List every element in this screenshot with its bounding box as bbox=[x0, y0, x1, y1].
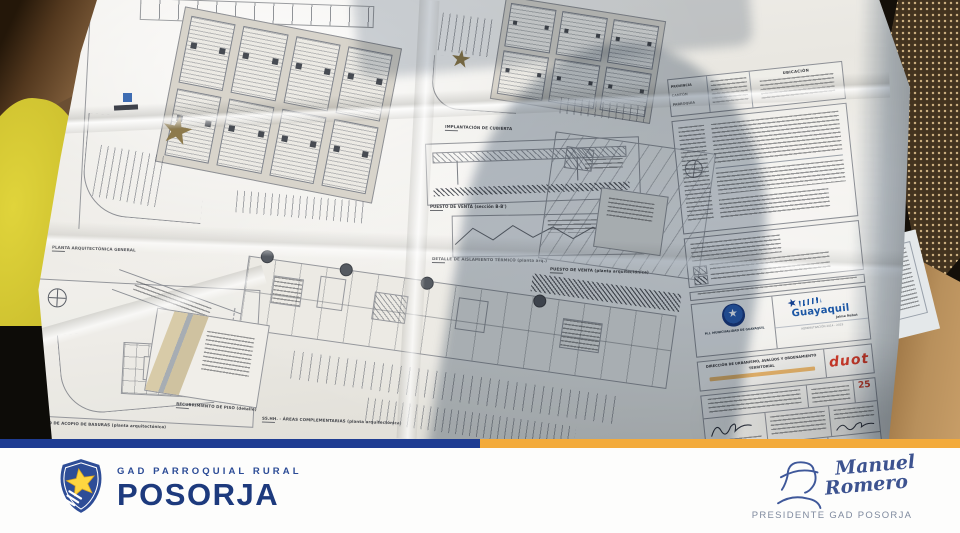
caption-planta-general: PLANTA ARQUITECTÓNICA GENERAL bbox=[52, 245, 136, 255]
roof-block bbox=[607, 19, 659, 70]
photo-of-blueprint: PLANTA ARQUITECTÓNICA GENERAL IMPLANTACI… bbox=[0, 0, 960, 439]
entry-label-bar bbox=[114, 104, 138, 110]
divider-blue-segment bbox=[0, 439, 480, 448]
president-signature: Manuel Romero bbox=[822, 449, 936, 504]
gold-star-icon bbox=[448, 47, 473, 74]
handicap-marker bbox=[123, 93, 132, 102]
caption-detalle-aislamiento: DETALLE DE AISLAMIENTO TÉRMICO (planta a… bbox=[432, 256, 547, 265]
stall-block bbox=[231, 26, 288, 101]
divider-bar bbox=[0, 439, 960, 448]
duot-logo: duot bbox=[824, 344, 873, 377]
stall-block bbox=[335, 46, 392, 121]
caption-implantacion-cubierta: IMPLANTACIÓN DE CUBIERTA bbox=[445, 124, 512, 133]
org-tagline: GAD PARROQUIAL RURAL bbox=[117, 466, 302, 477]
floor-detail-drawing bbox=[144, 308, 270, 409]
caption-puesto-venta-seccion: PUESTO DE VENTA (sección B-B') bbox=[430, 204, 507, 211]
footer-banner: GAD PARROQUIAL RURAL POSORJA Manuel Rome… bbox=[0, 448, 960, 533]
president-title: PRESIDENTE GAD POSORJA bbox=[732, 510, 932, 521]
president-signature-block: Manuel Romero PRESIDENTE GAD POSORJA bbox=[732, 454, 932, 526]
title-block: PROVINCIA CANTÓN PARROQUIA UBICACIÓN bbox=[660, 51, 887, 439]
guayaquil-logo: ★ Guayaquil Jaime Nebot ADMINISTRACIÓN 2… bbox=[772, 287, 870, 348]
stall-block bbox=[269, 109, 326, 184]
blueprint-sheet: PLANTA ARQUITECTÓNICA GENERAL IMPLANTACI… bbox=[0, 0, 960, 439]
municipal-seal: ★ M.I. MUNICIPALIDAD DE GUAYAQUIL bbox=[692, 296, 778, 356]
roof-block bbox=[504, 3, 556, 54]
stall-block bbox=[321, 119, 378, 194]
parking-stripes bbox=[92, 145, 164, 207]
shield-logo bbox=[56, 457, 106, 515]
post-image: PLANTA ARQUITECTÓNICA GENERAL IMPLANTACI… bbox=[0, 0, 960, 533]
org-name: POSORJA bbox=[117, 479, 302, 510]
divider-yellow-segment bbox=[480, 439, 960, 448]
roof-block bbox=[556, 11, 608, 62]
blueprint-drawings: PLANTA ARQUITECTÓNICA GENERAL IMPLANTACI… bbox=[0, 0, 960, 439]
stall-block bbox=[217, 99, 274, 174]
stall-block bbox=[178, 16, 235, 91]
municipal-seal-icon: ★ bbox=[720, 303, 745, 328]
gad-posorja-brand: GAD PARROQUIAL RURAL POSORJA bbox=[56, 457, 302, 515]
stall-block bbox=[283, 36, 340, 111]
north-compass-icon bbox=[47, 288, 67, 308]
signature-scribble bbox=[833, 417, 878, 434]
sheet-number-badge: 25 bbox=[855, 380, 873, 392]
specifications-text bbox=[671, 103, 858, 235]
road-curve bbox=[430, 55, 519, 114]
